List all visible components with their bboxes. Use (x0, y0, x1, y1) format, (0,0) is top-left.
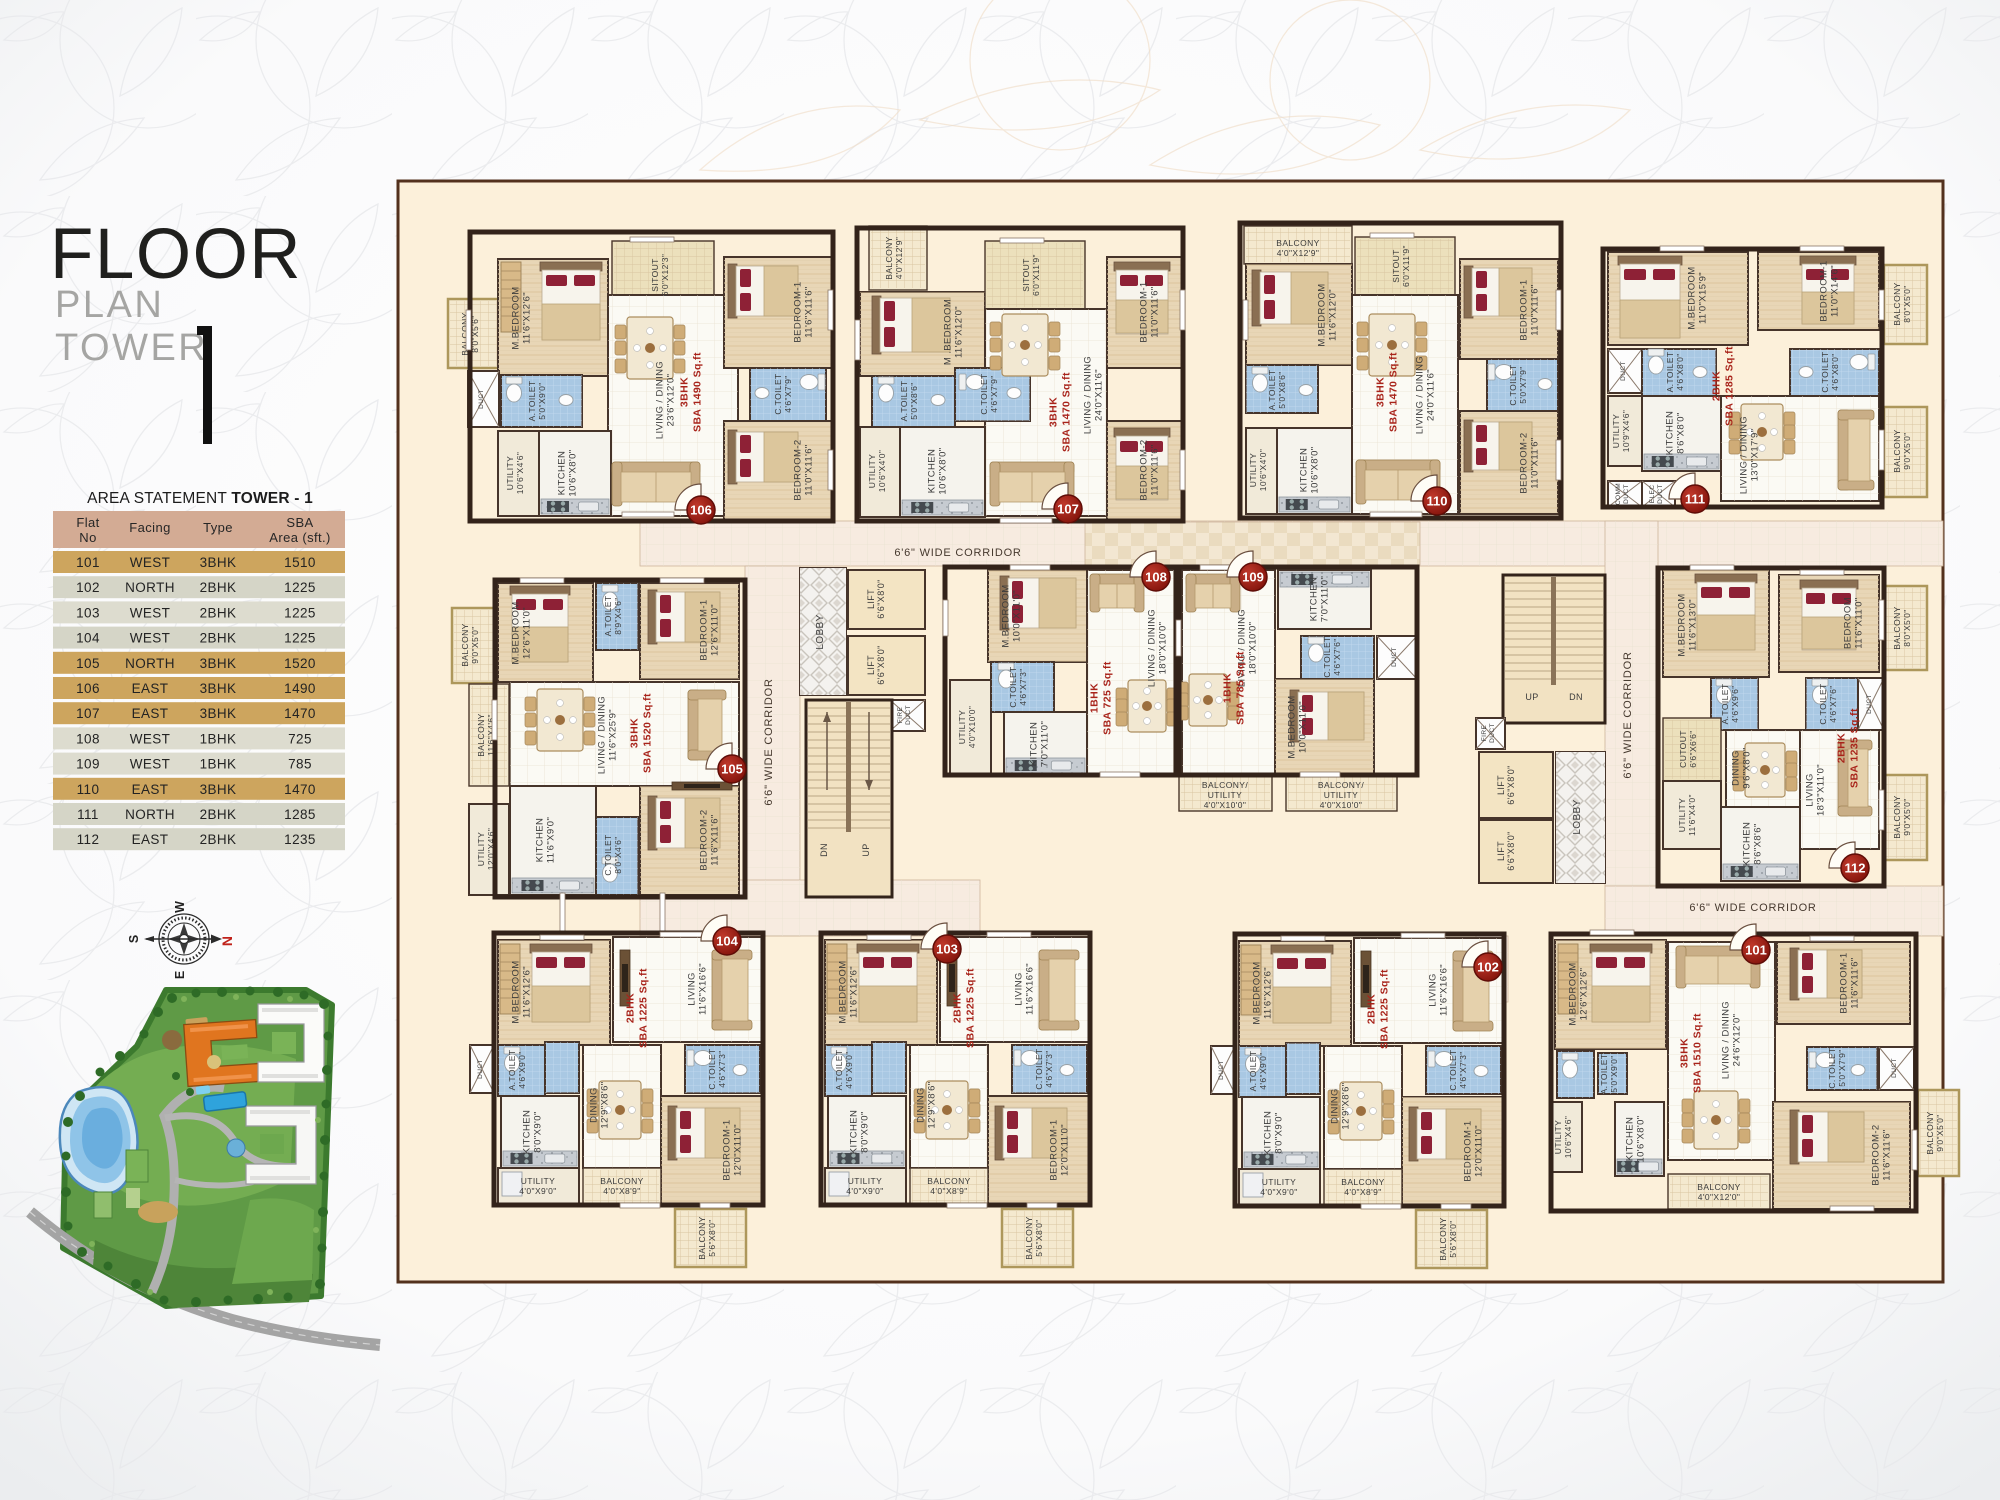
svg-text:DINING12'9"X8'6": DINING12'9"X8'6" (916, 1081, 938, 1128)
svg-text:EAST: EAST (132, 832, 169, 847)
svg-text:BEDROOM-211'0"X11'6": BEDROOM-211'0"X11'6" (1519, 432, 1541, 493)
svg-text:1470: 1470 (284, 706, 316, 721)
svg-text:C.TOILET5'0"X7'9": C.TOILET5'0"X7'9" (1508, 364, 1528, 405)
svg-text:BALCONY5'6"X8'0": BALCONY5'6"X8'0" (697, 1216, 717, 1259)
svg-text:DUCT: DUCT (478, 389, 485, 409)
svg-text:UTILITY4'0"X10'0": UTILITY4'0"X10'0" (957, 706, 977, 749)
svg-text:BEDROOM-211'6"X11'6": BEDROOM-211'6"X11'6" (1871, 1124, 1893, 1185)
svg-text:102: 102 (76, 580, 100, 595)
svg-text:FlatNo: FlatNo (76, 515, 99, 545)
svg-text:103: 103 (936, 942, 958, 957)
svg-text:KITCHEN7'0"X11'0": KITCHEN7'0"X11'0" (1309, 576, 1331, 622)
svg-text:EAST: EAST (132, 706, 169, 721)
svg-text:106: 106 (76, 681, 100, 696)
svg-text:M.BEDROOM11'6"X12'0": M.BEDROOM11'6"X12'0" (1317, 283, 1339, 346)
svg-text:BEDROOM-112'0"X11'0": BEDROOM-112'0"X11'0" (1463, 1120, 1485, 1181)
svg-text:KITCHEN10'6"X8'0": KITCHEN10'6"X8'0" (1625, 1115, 1647, 1162)
svg-text:KITCHEN8'6"X8'6": KITCHEN8'6"X8'6" (1742, 822, 1764, 867)
svg-text:UP: UP (1525, 692, 1538, 702)
svg-text:M.BEDROOM11'6"X12'6": M.BEDROOM11'6"X12'6" (511, 960, 533, 1023)
svg-text:DUCT: DUCT (1891, 1058, 1898, 1078)
svg-text:112: 112 (77, 832, 100, 847)
svg-text:DUCT: DUCT (1391, 647, 1398, 667)
svg-text:101: 101 (76, 555, 100, 570)
svg-text:M.BEDROOM11'6"X12'6": M.BEDROOM11'6"X12'6" (511, 286, 533, 349)
svg-text:A.TOILET4'6"X9'0": A.TOILET4'6"X9'0" (507, 1050, 527, 1091)
svg-text:2BHK: 2BHK (200, 605, 237, 620)
svg-text:S: S (127, 935, 141, 943)
svg-text:C.TOILET4'6"X7'3": C.TOILET4'6"X7'3" (707, 1048, 727, 1089)
svg-text:WEST: WEST (130, 555, 171, 570)
svg-text:2BHK: 2BHK (200, 580, 237, 595)
svg-text:BEDROOM-111'6"X11'6": BEDROOM-111'6"X11'6" (1839, 952, 1861, 1013)
svg-text:UTILITY10'6"X4'6": UTILITY10'6"X4'6" (505, 452, 525, 495)
svg-text:2BHK: 2BHK (200, 832, 237, 847)
svg-text:UTILITY4'0"X9'0": UTILITY4'0"X9'0" (519, 1176, 556, 1196)
svg-text:M.BEDROOM12'6"X12'6": M.BEDROOM12'6"X12'6" (1568, 962, 1590, 1025)
svg-text:KITCHEN7'0"X11'0": KITCHEN7'0"X11'0" (1029, 721, 1051, 767)
svg-text:DINING12'9"X8'6": DINING12'9"X8'6" (589, 1081, 611, 1128)
svg-text:AREA STATEMENT TOWER - 1: AREA STATEMENT TOWER - 1 (87, 490, 313, 507)
svg-text:C.TOILET4'6"X7'3": C.TOILET4'6"X7'3" (1448, 1049, 1468, 1090)
svg-text:UTILITY11'6"X4'0": UTILITY11'6"X4'0" (1677, 794, 1697, 836)
svg-text:6'6" WIDE CORRIDOR: 6'6" WIDE CORRIDOR (1689, 902, 1816, 914)
svg-text:C.TOILET4'6"X7'3": C.TOILET4'6"X7'3" (1034, 1048, 1054, 1089)
svg-text:BEDROOM-111'0"X11'6": BEDROOM-111'0"X11'6" (1519, 279, 1541, 340)
svg-text:WEST: WEST (130, 731, 171, 746)
svg-text:1510: 1510 (284, 555, 316, 570)
svg-text:M.BEDROOM10'0"X11'0": M.BEDROOM10'0"X11'0" (1001, 584, 1023, 647)
svg-text:KITCHEN11'6"X9'0": KITCHEN11'6"X9'0" (535, 817, 557, 863)
svg-text:110: 110 (1427, 494, 1448, 509)
svg-text:FLOOR: FLOOR (50, 215, 302, 294)
svg-text:DN: DN (819, 843, 829, 857)
svg-text:WEST: WEST (130, 757, 171, 772)
svg-text:M .BEDROOM11'6"X12'0": M .BEDROOM11'6"X12'0" (943, 299, 965, 365)
svg-text:BALCONY9'0"X5'0": BALCONY9'0"X5'0" (1892, 429, 1912, 472)
svg-text:111: 111 (77, 807, 99, 822)
svg-text:FIREDUCT: FIREDUCT (1481, 723, 1496, 743)
svg-text:6'6" WIDE CORRIDOR: 6'6" WIDE CORRIDOR (763, 678, 775, 805)
svg-text:6'6" WIDE CORRIDOR: 6'6" WIDE CORRIDOR (894, 547, 1021, 559)
svg-text:A.TOILET4'6"X8'0": A.TOILET4'6"X8'0" (1665, 352, 1685, 393)
svg-text:LOBBY: LOBBY (815, 614, 826, 649)
svg-text:BALCONY9'0"X5'0": BALCONY9'0"X5'0" (1892, 795, 1912, 838)
svg-text:COMMDUCT: COMMDUCT (1615, 483, 1630, 505)
svg-text:107: 107 (76, 706, 100, 721)
svg-text:N: N (219, 936, 235, 946)
svg-text:102: 102 (1477, 960, 1499, 975)
svg-text:M.BEDROOM10'0"X11'0": M.BEDROOM10'0"X11'0" (1287, 695, 1309, 758)
svg-text:KITCHEN10'6"X8'0": KITCHEN10'6"X8'0" (927, 447, 949, 494)
svg-text:C.TOILET4'6"X7'9": C.TOILET4'6"X7'9" (979, 373, 999, 414)
svg-text:BALCONY4'0"X12'0": BALCONY4'0"X12'0" (1697, 1182, 1740, 1202)
svg-text:BALCONY9'0"X5'0": BALCONY9'0"X5'0" (460, 623, 480, 666)
svg-text:EAST: EAST (132, 681, 169, 696)
svg-text:M.BEDROOM11'6"X12'6": M.BEDROOM11'6"X12'6" (1252, 961, 1274, 1024)
svg-text:KITCHEN10'6"X8'0": KITCHEN10'6"X8'0" (557, 449, 579, 496)
svg-text:LOBBY: LOBBY (1572, 799, 1583, 834)
svg-text:2BHK: 2BHK (200, 807, 237, 822)
svg-text:104: 104 (76, 631, 100, 646)
svg-text:A.TOILET5'0"X9'0": A.TOILET5'0"X9'0" (1599, 1054, 1619, 1095)
svg-text:BEDROOM-112'6"X11'0": BEDROOM-112'6"X11'0" (699, 599, 721, 660)
svg-text:A.TOILET8'9"X4'6": A.TOILET8'9"X4'6" (603, 596, 623, 637)
svg-text:1225: 1225 (284, 580, 316, 595)
svg-text:KITCHEN8'0"X9'0": KITCHEN8'0"X9'0" (522, 1110, 544, 1155)
svg-text:3BHK: 3BHK (200, 681, 237, 696)
svg-text:KITCHEN8'0"X9'0": KITCHEN8'0"X9'0" (849, 1110, 871, 1155)
svg-text:A.TOILET5'0"X8'6": A.TOILET5'0"X8'6" (899, 381, 919, 422)
svg-text:UTILITY10'9"X4'6": UTILITY10'9"X4'6" (1611, 410, 1631, 453)
svg-text:SITOUT6'0"X11'9": SITOUT6'0"X11'9" (1391, 245, 1411, 287)
svg-text:105: 105 (721, 762, 743, 777)
svg-text:BEDROOM-211'0"X11'6": BEDROOM-211'0"X11'6" (1139, 439, 1161, 500)
svg-text:A.TOILET5'0"X9'0": A.TOILET5'0"X9'0" (527, 381, 547, 422)
svg-text:C.TOILET5'0"X7'9": C.TOILET5'0"X7'9" (1827, 1047, 1847, 1088)
svg-text:1BHK: 1BHK (200, 731, 237, 746)
svg-text:C.TOILET4'6"X7'3": C.TOILET4'6"X7'3" (1008, 666, 1028, 707)
svg-text:DUCT: DUCT (1620, 361, 1627, 381)
svg-text:1225: 1225 (284, 605, 316, 620)
svg-text:BEDROOM-211'0"X11'6": BEDROOM-211'0"X11'6" (793, 439, 815, 500)
svg-text:UTILITY10'6"X4'6": UTILITY10'6"X4'6" (1553, 1116, 1573, 1159)
svg-text:SITOUT6'0"X11'9": SITOUT6'0"X11'9" (1021, 254, 1041, 296)
svg-text:PLAN: PLAN (55, 284, 164, 326)
svg-text:NORTH: NORTH (125, 656, 175, 671)
svg-text:105: 105 (76, 656, 100, 671)
svg-text:3BHK: 3BHK (200, 706, 237, 721)
svg-text:C.TOILET4'6"X8'0": C.TOILET4'6"X8'0" (1820, 351, 1840, 392)
svg-text:2BHK: 2BHK (200, 631, 237, 646)
svg-text:108: 108 (76, 731, 100, 746)
svg-text:BALCONY9'0"X5'0": BALCONY9'0"X5'0" (1925, 1111, 1945, 1154)
svg-text:Facing: Facing (129, 520, 170, 535)
svg-text:M.BEDROOM11'0"X15'9": M.BEDROOM11'0"X15'9" (1687, 266, 1709, 329)
svg-text:C.TOILET4'6"X7'6": C.TOILET4'6"X7'6" (1322, 636, 1342, 677)
svg-text:1BHK: 1BHK (200, 757, 237, 772)
svg-text:BALCONY4'0"X12'9": BALCONY4'0"X12'9" (1276, 238, 1319, 258)
svg-text:6'6" WIDE CORRIDOR: 6'6" WIDE CORRIDOR (1622, 651, 1634, 778)
svg-text:FIREDUCT: FIREDUCT (897, 705, 912, 725)
svg-text:BEDROOM-111'0"X14'6": BEDROOM-111'0"X14'6" (1819, 260, 1841, 321)
svg-text:KITCHEN8'6"X8'0": KITCHEN8'6"X8'0" (1665, 411, 1687, 456)
svg-text:BALCONY4'0"X8'9": BALCONY4'0"X8'9" (1341, 1177, 1384, 1197)
svg-text:W: W (173, 901, 187, 913)
svg-text:725: 725 (288, 731, 312, 746)
svg-text:TOWER: TOWER (55, 327, 208, 369)
svg-text:DUCT: DUCT (1218, 1060, 1225, 1080)
svg-text:DINING9'6"X8'0": DINING9'6"X8'0" (1731, 747, 1753, 788)
svg-text:BEDROOM-112'0"X11'0": BEDROOM-112'0"X11'0" (1049, 1119, 1071, 1180)
svg-text:785: 785 (288, 757, 312, 772)
svg-text:BALCONY8'0"X5'0": BALCONY8'0"X5'0" (1892, 282, 1912, 325)
svg-text:109: 109 (1242, 570, 1264, 585)
svg-text:M.BEDROOM11'6"X12'6": M.BEDROOM11'6"X12'6" (838, 960, 860, 1023)
svg-text:1235: 1235 (284, 832, 316, 847)
svg-text:M.BEDROOM12'6"X11'0": M.BEDROOM12'6"X11'0" (511, 601, 533, 664)
svg-text:A.TOILET4'6"X9'0": A.TOILET4'6"X9'0" (834, 1050, 854, 1091)
svg-text:BALCONY4'0"X12'9": BALCONY4'0"X12'9" (884, 236, 904, 279)
svg-text:SITOUT6'0"X12'3": SITOUT6'0"X12'3" (650, 254, 670, 297)
svg-text:BALCONY4'0"X8'9": BALCONY4'0"X8'9" (600, 1176, 643, 1196)
svg-text:ELECDUCT: ELECDUCT (1649, 484, 1664, 504)
svg-text:A.TOILET5'0"X8'6": A.TOILET5'0"X8'6" (1267, 370, 1287, 411)
svg-text:KITCHEN10'6"X8'0": KITCHEN10'6"X8'0" (1299, 446, 1321, 493)
svg-text:A.TOILET4'6"X9'6": A.TOILET4'6"X9'6" (1720, 684, 1740, 725)
svg-text:WEST: WEST (130, 631, 171, 646)
svg-text:C.TOILET4'6"X7'6": C.TOILET4'6"X7'6" (1818, 683, 1838, 724)
svg-text:NORTH: NORTH (125, 580, 175, 595)
svg-text:BEDROOM-111'6"X11'6": BEDROOM-111'6"X11'6" (793, 281, 815, 342)
svg-text:1285: 1285 (284, 807, 316, 822)
svg-text:UTILITY10'6"X4'0": UTILITY10'6"X4'0" (1248, 449, 1268, 492)
svg-text:NORTH: NORTH (125, 807, 175, 822)
svg-text:BEDROOM-111'0"X11'6": BEDROOM-111'0"X11'6" (1139, 281, 1161, 342)
svg-text:BALCONY4'0"X8'9": BALCONY4'0"X8'9" (927, 1176, 970, 1196)
svg-text:Type: Type (203, 520, 233, 535)
svg-text:110: 110 (77, 782, 100, 797)
svg-text:A.TOILET4'6"X9'0": A.TOILET4'6"X9'0" (1248, 1051, 1268, 1092)
svg-text:BEDROOM11'6"X11'0": BEDROOM11'6"X11'0" (1843, 597, 1865, 649)
svg-text:KITCHEN8'0"X9'0": KITCHEN8'0"X9'0" (1263, 1111, 1285, 1156)
svg-text:UP: UP (861, 843, 871, 856)
svg-text:E: E (173, 971, 187, 979)
svg-text:DUCT: DUCT (1866, 694, 1873, 714)
svg-text:104: 104 (716, 934, 738, 949)
svg-text:111: 111 (1685, 492, 1705, 507)
svg-text:3BHK: 3BHK (200, 782, 237, 797)
svg-text:BALCONY/UTILITY4'0"X10'0": BALCONY/UTILITY4'0"X10'0" (1202, 780, 1248, 810)
svg-text:101: 101 (1745, 943, 1767, 958)
svg-text:112: 112 (1845, 861, 1866, 876)
svg-text:BALCONY/UTILITY4'0"X10'0": BALCONY/UTILITY4'0"X10'0" (1318, 780, 1364, 810)
svg-text:DINING12'9"X8'6": DINING12'9"X8'6" (1330, 1082, 1352, 1129)
svg-text:BALCONY8'0"X5'0": BALCONY8'0"X5'0" (1892, 606, 1912, 649)
svg-text:WEST: WEST (130, 605, 171, 620)
svg-text:1520: 1520 (284, 656, 316, 671)
svg-text:1225: 1225 (284, 631, 316, 646)
svg-text:CUTOUT6'6"X6'6": CUTOUT6'6"X6'6" (1678, 730, 1698, 768)
svg-text:108: 108 (1145, 570, 1167, 585)
svg-text:103: 103 (76, 605, 100, 620)
svg-text:1470: 1470 (284, 782, 316, 797)
svg-text:BEDROOM-112'0"X11'0": BEDROOM-112'0"X11'0" (722, 1119, 744, 1180)
svg-text:UTILITY4'0"X9'0": UTILITY4'0"X9'0" (1260, 1177, 1297, 1197)
svg-text:M.BEDROOM11'6"X13'0": M.BEDROOM11'6"X13'0" (1677, 593, 1699, 656)
svg-text:UTILITY4'0"X9'0": UTILITY4'0"X9'0" (846, 1176, 883, 1196)
svg-text:UTILITY10'6"X4'0": UTILITY10'6"X4'0" (867, 450, 887, 493)
svg-text:3BHK: 3BHK (200, 555, 237, 570)
svg-text:C.TOILET4'6"X7'9": C.TOILET4'6"X7'9" (773, 373, 793, 414)
svg-text:DN: DN (1569, 692, 1583, 702)
svg-text:BALCONY5'6"X8'0": BALCONY5'6"X8'0" (1024, 1216, 1044, 1259)
svg-text:3BHK: 3BHK (200, 656, 237, 671)
svg-text:106: 106 (690, 503, 712, 518)
svg-text:BEDROOM-211'6"X11'6": BEDROOM-211'6"X11'6" (699, 809, 721, 870)
svg-text:EAST: EAST (132, 782, 169, 797)
svg-text:C.TOILET8'0"X4'6": C.TOILET8'0"X4'6" (603, 834, 623, 875)
svg-text:DUCT: DUCT (477, 1059, 484, 1079)
svg-text:1490: 1490 (284, 681, 316, 696)
svg-text:109: 109 (76, 757, 100, 772)
svg-text:BALCONY5'6"X8'0": BALCONY5'6"X8'0" (1438, 1217, 1458, 1260)
svg-text:107: 107 (1057, 502, 1079, 517)
